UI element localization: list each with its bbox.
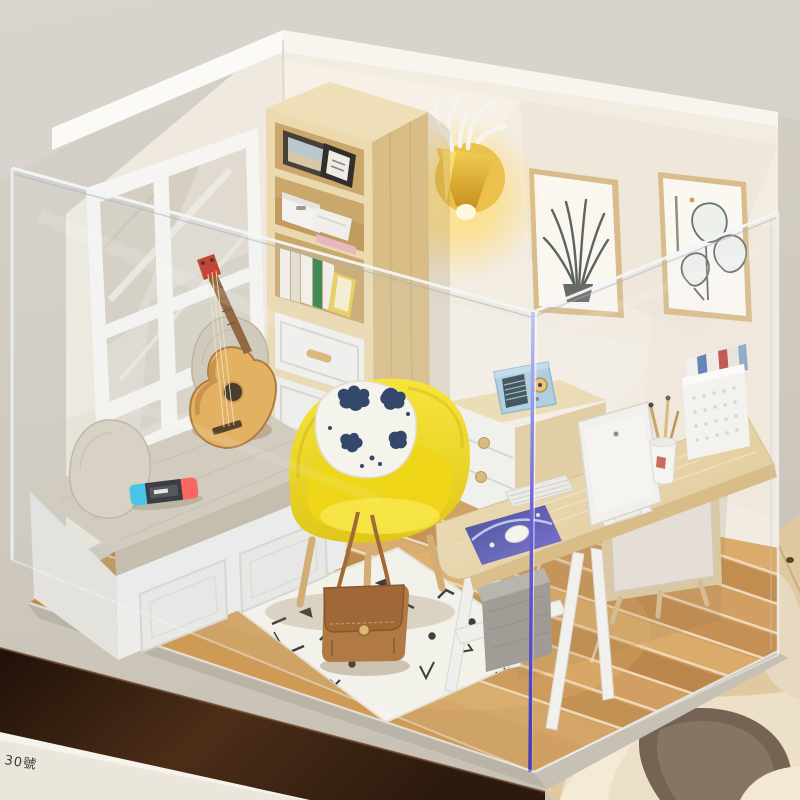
lamp-bulb (456, 204, 476, 220)
photo-stage: 30號 (0, 0, 800, 800)
miniature-room-photo: 30號 (0, 0, 800, 800)
